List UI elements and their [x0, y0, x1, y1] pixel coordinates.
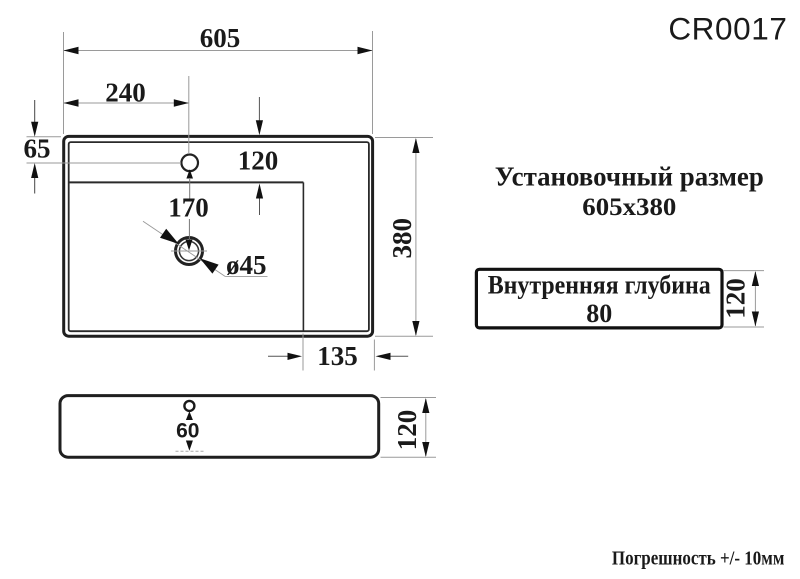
svg-text:380: 380 [387, 218, 417, 258]
svg-text:ø45: ø45 [226, 250, 267, 280]
svg-text:170: 170 [168, 193, 209, 223]
svg-text:Внутренняя глубина: Внутренняя глубина [488, 271, 711, 300]
svg-text:135: 135 [317, 341, 358, 371]
svg-text:CR0017: CR0017 [668, 11, 787, 47]
svg-text:240: 240 [105, 78, 146, 108]
svg-text:60: 60 [176, 420, 199, 443]
svg-text:120: 120 [238, 146, 279, 176]
svg-text:120: 120 [392, 410, 422, 451]
svg-text:Установочный размер: Установочный размер [495, 162, 764, 192]
svg-text:80: 80 [586, 299, 612, 328]
svg-text:120: 120 [721, 278, 751, 319]
svg-text:Погрешность +/- 10мм: Погрешность +/- 10мм [612, 548, 785, 570]
svg-text:65: 65 [24, 134, 51, 164]
svg-text:605x380: 605x380 [582, 194, 676, 221]
svg-text:605: 605 [200, 23, 241, 53]
